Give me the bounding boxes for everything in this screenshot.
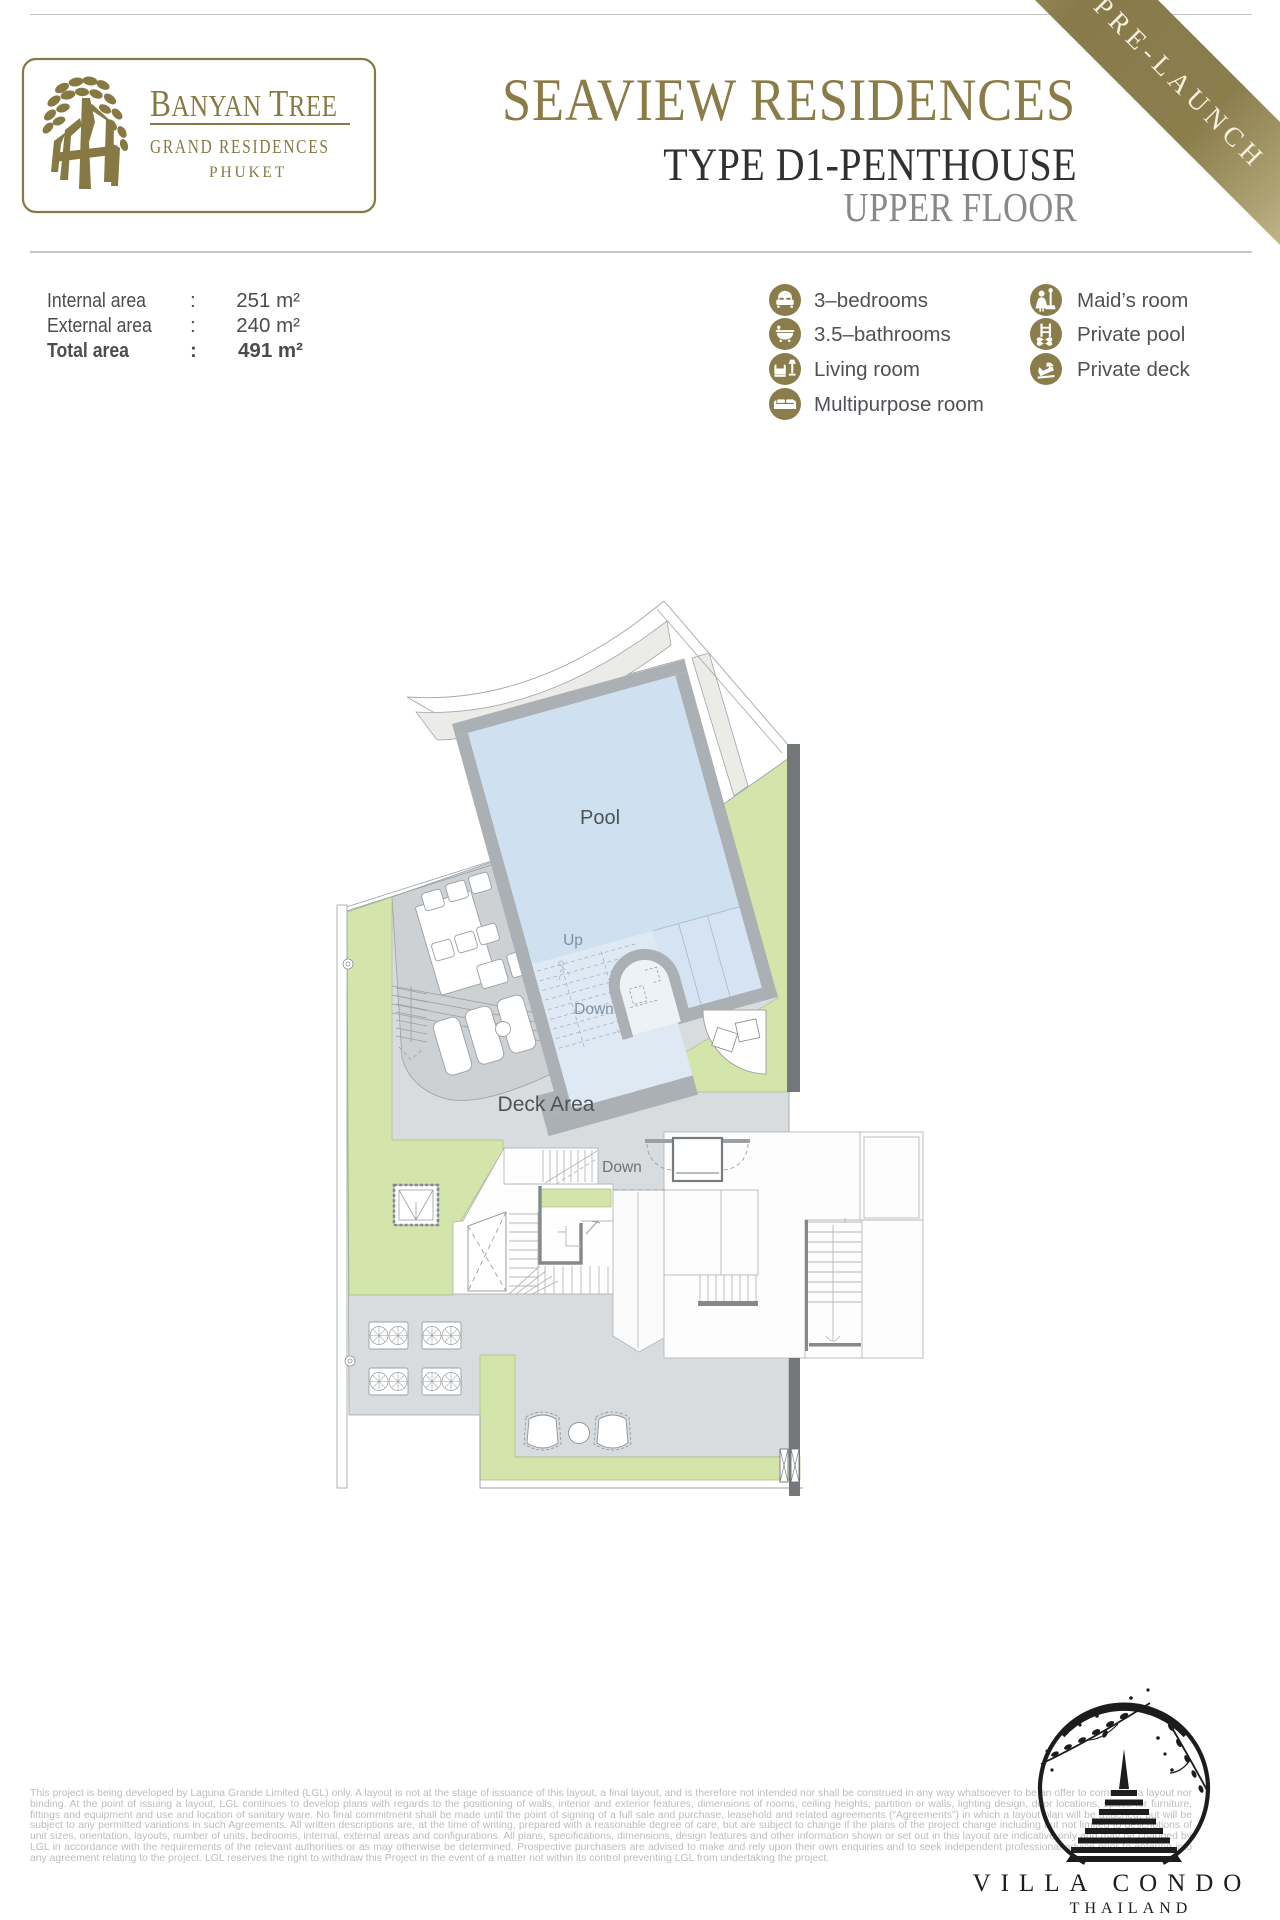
svg-text:Living room: Living room (814, 358, 920, 381)
svg-text:THAILAND: THAILAND (1070, 1900, 1193, 1917)
svg-text:Deck Area: Deck Area (498, 1093, 595, 1116)
svg-text:PHUKET: PHUKET (209, 164, 287, 181)
svg-text:GRAND RESIDENCES: GRAND RESIDENCES (150, 135, 330, 157)
svg-text:Pool: Pool (580, 807, 620, 829)
svg-text:Multipurpose room: Multipurpose room (814, 393, 984, 416)
svg-text:3.5–bathrooms: 3.5–bathrooms (814, 323, 951, 346)
svg-text:Private pool: Private pool (1077, 323, 1185, 346)
svg-text:Down: Down (574, 1001, 614, 1018)
svg-text:3–bedrooms: 3–bedrooms (814, 289, 928, 312)
svg-text:VILLA CONDO: VILLA CONDO (973, 1870, 1252, 1897)
svg-text:Maid’s room: Maid’s room (1077, 289, 1188, 312)
svg-text:Private deck: Private deck (1077, 358, 1191, 381)
svg-text:Down: Down (602, 1159, 642, 1176)
svg-text:Up: Up (563, 932, 583, 949)
